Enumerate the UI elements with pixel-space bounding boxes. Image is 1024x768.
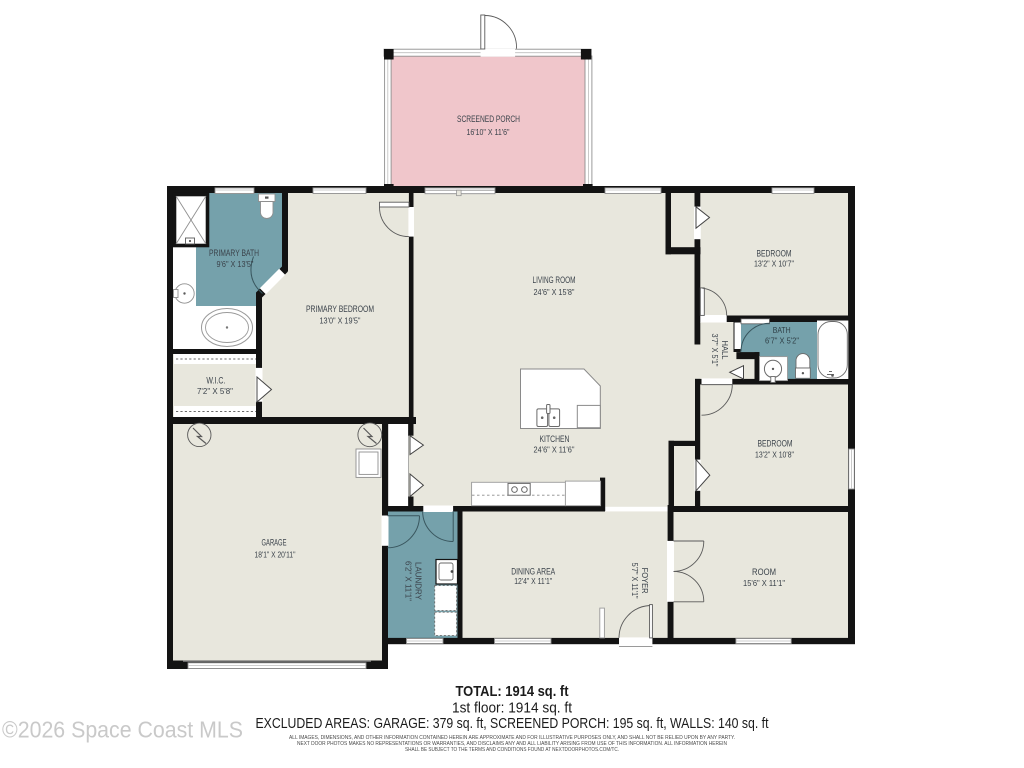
svg-text:13'2" X 10'8": 13'2" X 10'8" <box>755 450 794 459</box>
svg-text:3'7" X 5'1": 3'7" X 5'1" <box>710 334 719 367</box>
svg-text:5'7" X 11'1": 5'7" X 11'1" <box>630 563 639 599</box>
svg-text:KITCHEN: KITCHEN <box>540 434 570 444</box>
svg-text:PRIMARY BATH: PRIMARY BATH <box>209 248 259 258</box>
svg-text:GARAGE: GARAGE <box>262 537 287 547</box>
svg-text:7'2" X 5'8": 7'2" X 5'8" <box>197 387 233 396</box>
svg-text:ALL IMAGES, DIMENSIONS, AND OT: ALL IMAGES, DIMENSIONS, AND OTHER INFORM… <box>289 735 735 741</box>
svg-text:W.I.C.: W.I.C. <box>206 376 225 386</box>
svg-text:24'6" X 15'8": 24'6" X 15'8" <box>534 288 575 297</box>
svg-text:6'2" X 11'1": 6'2" X 11'1" <box>403 561 412 601</box>
svg-text:HALL: HALL <box>720 341 730 360</box>
svg-text:©2026 Space Coast MLS: ©2026 Space Coast MLS <box>2 717 243 743</box>
svg-text:SHALL BE SUBJECT TO THE TERMS: SHALL BE SUBJECT TO THE TERMS AND CONDIT… <box>405 747 619 753</box>
svg-text:BATH: BATH <box>773 325 791 335</box>
svg-text:12'4" X 11'1": 12'4" X 11'1" <box>514 577 552 586</box>
svg-text:TOTAL: 1914 sq. ft: TOTAL: 1914 sq. ft <box>456 683 569 700</box>
svg-text:FOYER: FOYER <box>640 568 650 594</box>
svg-text:16'10" X 11'6": 16'10" X 11'6" <box>467 128 510 137</box>
svg-text:DINING AREA: DINING AREA <box>511 567 555 577</box>
svg-text:PRIMARY BEDROOM: PRIMARY BEDROOM <box>306 304 374 314</box>
svg-text:24'6" X 11'6": 24'6" X 11'6" <box>534 445 575 454</box>
svg-text:6'7" X 5'2": 6'7" X 5'2" <box>765 336 799 345</box>
svg-text:ROOM: ROOM <box>752 567 776 577</box>
svg-text:SCREENED PORCH: SCREENED PORCH <box>457 114 520 124</box>
svg-text:BEDROOM: BEDROOM <box>758 438 793 448</box>
svg-text:13'0" X 19'5": 13'0" X 19'5" <box>320 317 361 326</box>
svg-text:BEDROOM: BEDROOM <box>757 248 792 258</box>
svg-text:LAUNDRY: LAUNDRY <box>413 562 423 600</box>
svg-text:9'6" X 13'5": 9'6" X 13'5" <box>217 260 254 269</box>
svg-text:18'1" X 20'11": 18'1" X 20'11" <box>255 551 296 560</box>
svg-text:15'6" X 11'1": 15'6" X 11'1" <box>743 579 785 588</box>
svg-text:EXCLUDED AREAS: GARAGE: 379 sq: EXCLUDED AREAS: GARAGE: 379 sq. ft, SCRE… <box>256 715 770 732</box>
svg-text:LIVING ROOM: LIVING ROOM <box>533 275 576 285</box>
svg-text:13'2" X 10'7": 13'2" X 10'7" <box>754 260 794 269</box>
